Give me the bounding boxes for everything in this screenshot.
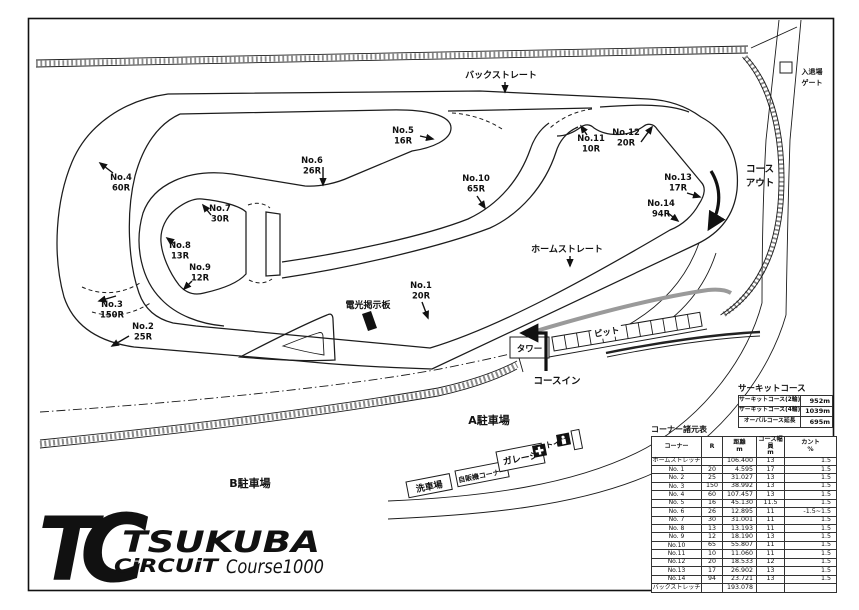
table-row: No. 62612.89511-1.5~1.5	[652, 508, 837, 516]
corner-label-no1: No.120R	[410, 280, 432, 318]
svg-text:16R: 16R	[394, 136, 413, 146]
svg-text:12R: 12R	[191, 273, 210, 283]
svg-text:No.2: No.2	[132, 321, 154, 331]
svg-text:25R: 25R	[134, 332, 153, 342]
home-straight-label: ホームストレート	[531, 244, 603, 255]
table-row: No.131726.902131.5	[652, 567, 837, 575]
svg-text:No.1: No.1	[410, 280, 432, 290]
corner-label-no9: No.912R	[184, 262, 211, 289]
course-out-arrow	[710, 171, 719, 227]
svg-text:150R: 150R	[100, 310, 124, 320]
corner-label-no2: No.225R	[112, 321, 154, 346]
table-row: No. 22531.027131.5	[652, 474, 837, 482]
corridor-island	[266, 212, 280, 276]
table-row: No.122018.533121.5	[652, 558, 837, 566]
corner-label-no14: No.1494R	[647, 198, 678, 221]
svg-text:No.13: No.13	[664, 172, 692, 182]
corner-label-no6: No.626R	[301, 155, 323, 185]
infield-exit-edge-north	[282, 123, 549, 262]
course-in-label: コースイン	[533, 376, 580, 387]
corner-label-no3: No.3150R	[99, 296, 125, 320]
toilet-icon	[556, 433, 571, 447]
grandstand-barrier	[40, 358, 523, 448]
corner-label-no10: No.1065R	[462, 173, 490, 208]
svg-text:No.6: No.6	[301, 155, 323, 165]
corner-label-no7: No.730R	[203, 203, 231, 224]
corner-arrow	[184, 281, 192, 289]
corner-table-body: ホームストレッチ106.400131.5No. 1204.595171.5No.…	[652, 457, 837, 592]
svg-text:30R: 30R	[211, 214, 230, 224]
svg-text:No.5: No.5	[392, 125, 414, 135]
corner-table-header: コーナー R 距離m コース幅員m カント%	[652, 437, 837, 458]
sign-board-label: 電光掲示板	[345, 299, 391, 311]
sign-board-symbol	[362, 311, 377, 331]
table-row: No.111011.060111.5	[652, 550, 837, 558]
corner-label-no12: No.1220R	[612, 127, 652, 148]
table-row: No. 81313.193111.5	[652, 525, 837, 533]
svg-text:20R: 20R	[617, 138, 636, 148]
tower-label: タワー	[517, 344, 543, 355]
svg-text:No.9: No.9	[189, 262, 211, 272]
svg-text:65R: 65R	[467, 184, 486, 194]
gate-label-1: 入退場	[801, 67, 823, 76]
road-centerline	[40, 353, 514, 412]
course-out-label-1: コース	[746, 164, 774, 175]
svg-text:No.11: No.11	[577, 133, 605, 143]
corner-label-no4: No.460R	[100, 163, 132, 193]
corridor-dash-bottom	[249, 279, 272, 283]
corner-arrow	[420, 136, 433, 139]
circuit-table-body: サーキットコース(2輪)952mサーキットコース(4輪)1039mオーバルコース…	[739, 396, 833, 428]
gate-booth	[780, 62, 792, 73]
corner-table-title: コーナー諸元表	[651, 424, 837, 435]
svg-text:No.4: No.4	[110, 172, 132, 182]
table-row: No.106555.807111.5	[652, 541, 837, 549]
table-row: ホームストレッチ106.400131.5	[652, 457, 837, 465]
track-map-page: ピット タワー 洗車場 自販機コーナー ガレージ トイレ No.120R No.…	[0, 0, 859, 610]
corner-arrow	[422, 302, 428, 318]
fences	[36, 46, 792, 448]
table-row: No. 91218.190131.5	[652, 533, 837, 541]
svg-text:No.14: No.14	[647, 198, 675, 208]
svg-text:No.10: No.10	[462, 173, 490, 183]
junction-dash-west	[452, 113, 502, 129]
corner-label-no11: No.1110R	[577, 126, 605, 154]
top-fence	[36, 50, 748, 64]
svg-text:No.7: No.7	[209, 203, 231, 213]
corner-spec-table: コーナー諸元表 コーナー R 距離m コース幅員m カント% ホームストレッチ1…	[651, 424, 837, 593]
table-row: No. 73031.001111.5	[652, 516, 837, 524]
table-row: No. 51645.13011.51.5	[652, 499, 837, 507]
table-row: No. 315038.992131.5	[652, 482, 837, 490]
svg-text:17R: 17R	[669, 183, 688, 193]
table-row: No. 1204.595171.5	[652, 465, 837, 473]
parking-b-label: B駐車場	[229, 476, 270, 490]
svg-text:10R: 10R	[582, 144, 601, 154]
corridor-dash-top	[248, 203, 270, 208]
corner-arrow	[477, 196, 485, 208]
parking-a-label: A駐車場	[468, 413, 510, 427]
logo-name: TSUKUBA	[122, 525, 320, 559]
corner-label-no8: No.813R	[167, 238, 191, 261]
table-row: バックストレッチ193.078	[652, 584, 837, 592]
svg-text:No.3: No.3	[101, 299, 123, 309]
table-row: サーキットコース(4輪)1039m	[739, 406, 833, 417]
corner-labels: No.120R No.225R No.3150R No.460R No.516R…	[99, 125, 700, 346]
tsukuba-circuit-logo: T C TSUKUBA CiRCUiT Course1000	[38, 495, 324, 604]
crossover-dash-1	[82, 283, 140, 293]
corner-arrow	[687, 193, 700, 197]
svg-text:20R: 20R	[412, 291, 431, 301]
logo-sub: CiRCUiT	[114, 555, 221, 577]
svg-text:13R: 13R	[171, 251, 190, 261]
back-straight-inner-edge	[448, 105, 689, 112]
svg-text:26R: 26R	[303, 166, 322, 176]
paddock-buildings: 洗車場 自販機コーナー ガレージ トイレ	[406, 429, 582, 497]
table-row: No.149423.721131.5	[652, 575, 837, 583]
corner-arrow	[641, 127, 652, 142]
small-building	[571, 429, 582, 449]
corner-label-no13: No.1317R	[664, 172, 700, 197]
corner-label-no5: No.516R	[392, 125, 433, 146]
course-out-label-2: アウト	[746, 178, 775, 189]
gate-label-2: ゲート	[802, 78, 823, 87]
circuit-length-table: サーキットコース サーキットコース(2輪)952mサーキットコース(4輪)103…	[738, 382, 833, 428]
back-straight-label: バックストレート	[465, 70, 537, 81]
table-row: No. 460107.457131.5	[652, 491, 837, 499]
table-row: サーキットコース(2輪)952m	[739, 396, 833, 407]
svg-text:60R: 60R	[112, 183, 131, 193]
circuit-table-title: サーキットコース	[738, 382, 833, 394]
svg-text:No.12: No.12	[612, 127, 640, 137]
logo-course: Course1000	[226, 556, 324, 578]
corner-arrow	[100, 163, 113, 173]
